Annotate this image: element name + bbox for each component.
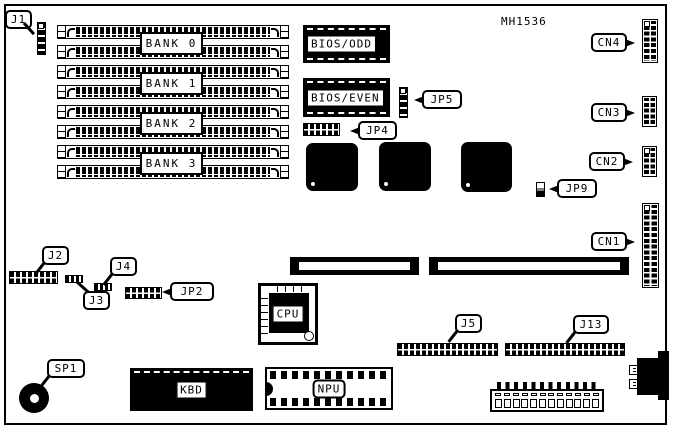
callout-j3: J3 [83,291,110,310]
part-number: MH1536 [501,15,547,28]
bios-even-label: BIOS/EVEN [307,89,384,106]
simm-clip-right-icon [280,66,288,78]
callout-cn3: CN3 [591,103,627,122]
power-hole-row [495,399,599,408]
callout-jp2: JP2 [170,282,214,301]
bus-slot-right [429,257,629,275]
simm-latch-right-icon [272,46,280,58]
power-slot-icon [593,393,599,396]
cpu-label: CPU [273,306,304,323]
callout-cn2-pointer-icon [623,158,633,166]
bios-even-pins-bottom-icon [307,112,386,114]
bank0-label: BANK 0 [140,32,203,55]
simm-clip-left-icon [58,126,66,138]
cpu-socket-pins-left-icon [261,292,268,334]
simm-clip-left-icon [58,46,66,58]
callout-jp5: JP5 [422,90,462,109]
callout-jp2-label: JP2 [181,286,204,297]
power-hole-icon [592,399,599,408]
cpu-pin1-notch-icon [304,331,314,341]
j1-pin1-marker [39,24,43,28]
asic1-pin1-dot-icon [311,182,315,186]
power-slot-icon [495,393,501,396]
callout-cn3-pointer-icon [625,109,635,117]
npu-pins-bottom-icon [270,398,388,406]
cn1-pin1-marker [645,206,649,210]
speaker-sp1 [19,383,49,413]
asic-chip-1 [306,143,358,191]
callout-j3-label: J3 [89,295,104,306]
callout-jp9-pointer-icon [549,185,559,193]
simm-latch-left-icon [66,66,74,78]
callout-jp5-label: JP5 [431,94,454,105]
power-hole-icon [530,399,537,408]
simm-latch-left-icon [66,166,74,178]
power-connector [490,382,604,412]
callout-j13-label: J13 [580,319,603,330]
callout-jp5-pointer-icon [414,96,424,104]
simm-latch-right-icon [272,126,280,138]
din-connector-body [637,358,660,395]
kbd-label: KBD [176,381,207,398]
asic2-pin1-dot-icon [384,182,388,186]
motherboard-diagram: MH1536 J1 [0,0,673,431]
power-slot-icon [522,393,528,396]
power-hole-icon [539,399,546,408]
simm-latch-left-icon [66,86,74,98]
power-hole-icon [557,399,564,408]
simm-latch-left-icon [66,126,74,138]
callout-cn3-label: CN3 [598,107,621,118]
connector-jp9 [536,182,545,197]
simm-clip-right-icon [280,106,288,118]
simm-clip-right-icon [280,46,288,58]
power-hole-icon [574,399,581,408]
asic-chip-2 [379,142,431,191]
power-hole-icon [566,399,573,408]
callout-cn1: CN1 [591,232,627,251]
cn4-pin1-marker [645,22,649,26]
din-connector-edge [658,351,669,400]
power-slot-icon [566,393,572,396]
power-slot-icon [504,393,510,396]
simm-clip-right-icon [280,166,288,178]
connector-cn3 [642,96,657,127]
bank2-label: BANK 2 [140,112,203,135]
power-slot-icon [575,393,581,396]
cpu-socket-pins-top-icon [270,286,308,292]
simm-latch-right-icon [272,166,280,178]
simm-latch-right-icon [272,146,280,158]
connector-j13 [505,343,625,356]
callout-cn1-pointer-icon [625,238,635,246]
callout-cn1-label: CN1 [598,236,621,247]
simm-latch-right-icon [272,66,280,78]
callout-cn4-pointer-icon [625,39,635,47]
connector-jp4 [303,123,340,136]
din-pin-top-icon [629,365,638,375]
jp5-pin1-marker [401,89,405,93]
asic3-pin1-dot-icon [466,183,470,187]
kbd-pins-top-icon [134,371,249,373]
simm-clip-left-icon [58,106,66,118]
power-hole-icon [521,399,528,408]
simm-clip-left-icon [58,86,66,98]
simm-clip-right-icon [280,126,288,138]
simm-latch-right-icon [272,106,280,118]
npu-pins-top-icon [270,371,388,379]
power-slot-icon [540,393,546,396]
power-connector-body [490,389,604,412]
connector-cn2 [642,146,657,177]
bios-odd-pins-top-icon [307,28,386,30]
callout-jp9: JP9 [557,179,597,198]
cpu-socket: CPU [258,283,318,345]
simm-clip-left-icon [58,26,66,38]
connector-j3 [65,275,83,283]
callout-j4-label: J4 [116,261,131,272]
power-hole-icon [504,399,511,408]
bus-slot-left [290,257,419,275]
connector-cn4 [642,19,658,63]
connector-j1 [37,22,46,55]
callout-cn4: CN4 [591,33,627,52]
callout-jp2-pointer-icon [162,288,172,296]
callout-jp9-label: JP9 [566,183,589,194]
npu-socket: NPU [265,367,393,410]
simm-latch-right-icon [272,26,280,38]
bios-odd-label: BIOS/ODD [307,36,376,53]
kbd-chip: KBD [130,368,253,411]
connector-j5 [397,343,498,356]
power-hole-icon [583,399,590,408]
power-slot-icon [513,393,519,396]
simm-latch-left-icon [66,146,74,158]
bios-odd-chip: BIOS/ODD [303,25,390,63]
power-hole-icon [548,399,555,408]
simm-clip-right-icon [280,146,288,158]
connector-jp2 [125,287,162,299]
callout-jp4: JP4 [358,121,397,140]
din-pin-bottom-icon [629,379,638,389]
callout-j13: J13 [573,315,609,334]
power-hole-icon [495,399,502,408]
npu-label: NPU [313,379,346,398]
speaker-hole-icon [30,394,39,403]
simm-latch-right-icon [272,86,280,98]
power-slot-icon [548,393,554,396]
power-slot-icon [557,393,563,396]
callout-cn4-label: CN4 [598,37,621,48]
bank3-label: BANK 3 [140,152,203,175]
callout-jp4-pointer-icon [350,127,360,135]
simm-clip-left-icon [58,146,66,158]
bios-even-chip: BIOS/EVEN [303,78,390,117]
simm-clip-left-icon [58,166,66,178]
power-hole-icon [513,399,520,408]
power-slot-icon [584,393,590,396]
bios-even-pins-top-icon [307,81,386,83]
connector-cn1 [642,203,659,288]
simm-clip-right-icon [280,86,288,98]
callout-sp1-label: SP1 [55,363,78,374]
callout-j5: J5 [455,314,482,333]
callout-j2: J2 [42,246,69,265]
connector-jp5 [399,87,408,118]
callout-jp4-label: JP4 [366,125,389,136]
callout-j2-label: J2 [48,250,63,261]
simm-clip-right-icon [280,26,288,38]
simm-latch-left-icon [66,26,74,38]
callout-sp1: SP1 [47,359,85,378]
callout-j4: J4 [110,257,137,276]
power-slot-row [495,393,599,396]
asic-chip-3 [461,142,512,192]
cn2-pin1-marker [645,149,649,153]
callout-cn2: CN2 [589,152,625,171]
simm-latch-left-icon [66,46,74,58]
bios-odd-pins-bottom-icon [307,58,386,60]
callout-cn2-label: CN2 [596,156,619,167]
callout-j5-label: J5 [461,318,476,329]
npu-notch-icon [266,382,273,396]
simm-latch-left-icon [66,106,74,118]
simm-clip-left-icon [58,66,66,78]
bank1-label: BANK 1 [140,72,203,95]
callout-j1: J1 [5,10,32,29]
power-slot-icon [531,393,537,396]
